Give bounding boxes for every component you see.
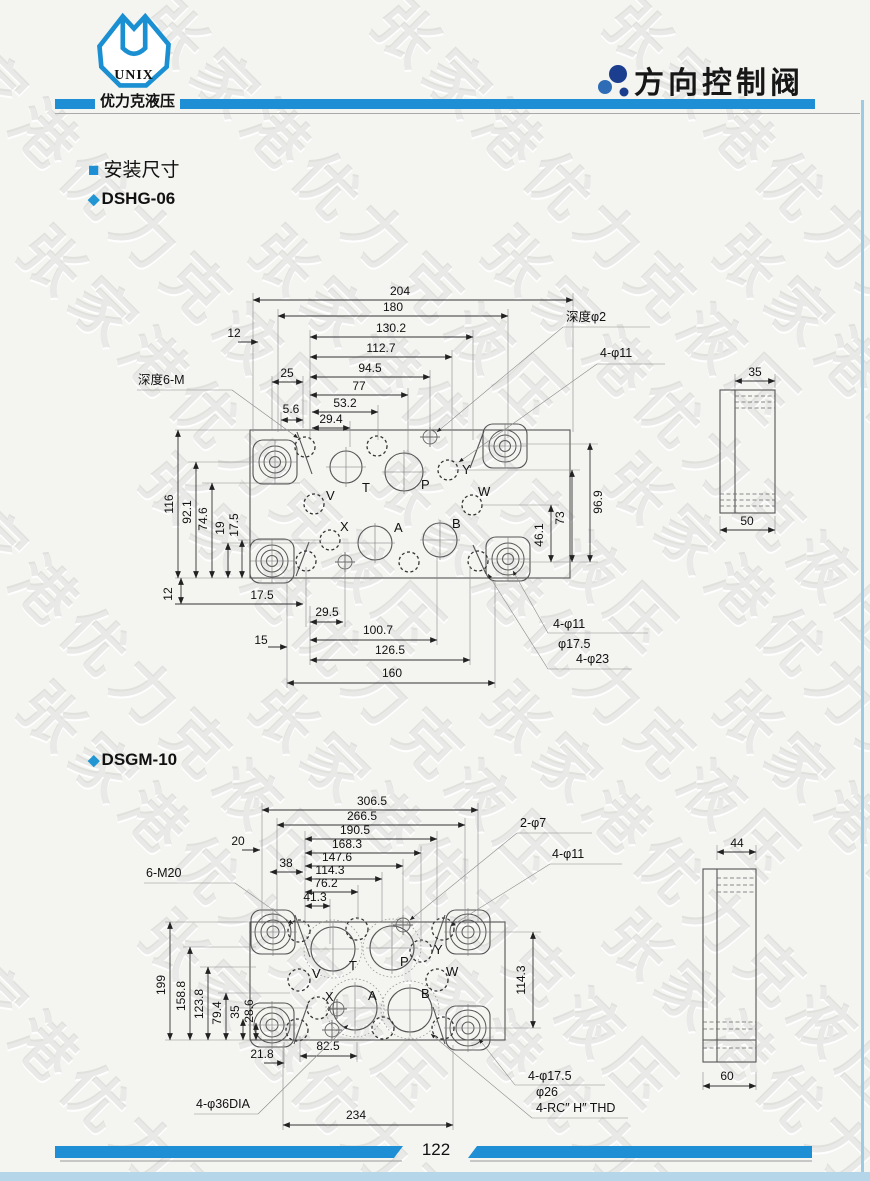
dim-value: 28.6: [242, 999, 256, 1023]
pilot-hole: [367, 436, 387, 456]
dim-value: 20: [231, 834, 245, 848]
ports: V T P Y W X A B: [295, 427, 491, 572]
dim-value: 17.5: [227, 513, 241, 537]
dim-value: 199: [154, 975, 168, 995]
dim-value: 158.8: [174, 981, 188, 1011]
annotation-depth-6m: 深度6-M: [138, 372, 185, 387]
model-heading-dsgm10: ◆DSGM-10: [88, 750, 177, 770]
mounting-hole: [444, 1004, 492, 1052]
dim-value: 82.5: [316, 1039, 340, 1053]
logo-text: UNIX: [114, 68, 154, 83]
mounting-hole: [253, 440, 297, 484]
dim-value: 126.5: [375, 643, 405, 657]
dim-value: 147.6: [322, 850, 352, 864]
dim-value: 114.3: [514, 965, 528, 994]
mounting-hole: [486, 537, 530, 581]
port-X-hole: [320, 530, 340, 550]
port-P: [382, 450, 426, 494]
dims-right: 96.9 73 46.1: [532, 443, 605, 562]
page-title: 方向控制阀: [634, 58, 804, 102]
dim-value: 123.8: [192, 989, 206, 1019]
footer-bar-right: [468, 1146, 812, 1158]
annotations: 深度φ2 4-φ11 深度6-M 4-φ11 φ17.5 4-φ23: [137, 309, 665, 669]
dsgm10-drawing: V T P Y W X A B 306.5 266.5 190.5 168.3 …: [0, 780, 870, 1140]
mounting-hole: [250, 539, 294, 583]
dim-value: 74.6: [196, 507, 210, 531]
port-T: [326, 447, 366, 487]
annotation-4phi175: 4-φ17.5: [528, 1069, 572, 1083]
dim-value: 92.1: [180, 500, 194, 524]
annotation-4phi11: 4-φ11: [552, 847, 584, 861]
dim-value: 266.5: [347, 809, 377, 823]
dim-value: 35: [748, 365, 762, 379]
port-label: X: [325, 989, 334, 1004]
annotation-4phi11-top: 4-φ11: [600, 346, 632, 360]
port-label: V: [312, 966, 321, 981]
port-label: B: [421, 986, 430, 1001]
pilot-hole: [468, 551, 488, 571]
dim-value: 29.5: [315, 605, 339, 619]
dim-value: 53.2: [333, 396, 357, 410]
dim-value: 50: [740, 514, 754, 528]
dim-value: 77: [352, 379, 366, 393]
annotation-4phi11-bottom: 4-φ11: [553, 617, 585, 631]
section-heading: ■安装尺寸: [88, 155, 180, 182]
annotation-4phi36dia: 4-φ36DIA: [196, 1097, 251, 1111]
dim-value: 12: [161, 587, 175, 601]
dim-value: 190.5: [340, 823, 370, 837]
dim-value: 76.2: [314, 876, 338, 890]
page-number: 122: [408, 1140, 464, 1160]
port-V-hole: [304, 494, 324, 514]
dims-right: 114.3: [514, 932, 533, 1028]
dim-value: 94.5: [358, 361, 382, 375]
port-P: [363, 919, 421, 977]
dim-value: 112.7: [366, 341, 395, 355]
dim-value: 168.3: [332, 837, 362, 851]
dim-value: 114.3: [315, 863, 344, 877]
dim-value: 116: [162, 494, 176, 513]
dim-value: 35: [228, 1005, 242, 1019]
annotation-4phi23: 4-φ23: [576, 652, 609, 666]
annotation-phi175: φ17.5: [558, 637, 590, 651]
dim-value: 180: [383, 300, 403, 314]
dim-value: 79.4: [210, 1001, 224, 1025]
dim-value: 12: [227, 326, 241, 340]
dim-value: 100.7: [363, 623, 393, 637]
dim-value: 41.3: [303, 890, 327, 904]
dim-value: 17.5: [250, 588, 274, 602]
dshg06-drawing: V T P Y W X A B 204 180 130.2 1: [0, 270, 870, 700]
dim-value: 5.6: [283, 402, 300, 416]
annotation-phi26: φ26: [536, 1085, 558, 1099]
bottom-edge-strip: [0, 1172, 870, 1181]
brand-text: 优力克液压: [100, 90, 175, 111]
port-label: Y: [434, 942, 443, 957]
port-label: T: [349, 958, 357, 973]
dim-value: 29.4: [319, 412, 343, 426]
port-label: T: [362, 480, 370, 495]
dims-top: 306.5 266.5 190.5 168.3 147.6 114.3 76.2…: [231, 794, 478, 906]
mounting-plate-outline: [250, 424, 570, 583]
dims-bottom: 21.8 82.5 234: [250, 1039, 453, 1125]
title-dots-icon: [596, 62, 634, 100]
dim-value: 19: [213, 521, 227, 535]
port-label: A: [394, 520, 403, 535]
dim-value: 306.5: [357, 794, 387, 808]
port-label: W: [478, 484, 491, 499]
section-title: 安装尺寸: [103, 160, 179, 181]
port-label: Y: [462, 462, 471, 477]
blue-diamond-icon: ◆: [88, 191, 100, 208]
dim-value: 44: [730, 836, 744, 850]
side-view: 35 50: [720, 365, 775, 534]
dim-value: 160: [382, 666, 402, 680]
pilot-hole: [346, 918, 368, 940]
mounting-hole: [249, 908, 297, 956]
dims-left: 116 92.1 74.6 19 17.5: [162, 430, 242, 578]
dim-value: 21.8: [250, 1047, 274, 1061]
annotation-depth-phi2: 深度φ2: [566, 309, 606, 324]
model-name: DSHG-06: [102, 189, 176, 208]
port-label: W: [446, 964, 459, 979]
model-name: DSGM-10: [102, 750, 178, 769]
port-B: [381, 981, 439, 1039]
dim-value: 130.2: [376, 321, 406, 335]
dim-value: 73: [553, 511, 567, 525]
annotation-rc-thread: 4-RC″ H″ THD: [536, 1101, 615, 1115]
dim-value: 25: [280, 366, 294, 380]
brand-bar-left: [55, 99, 95, 109]
port-label: V: [326, 488, 335, 503]
dim-value: 15: [254, 633, 268, 647]
port-label: B: [452, 516, 461, 531]
dim-value: 46.1: [532, 523, 546, 547]
dims-bottom: 12 17.5 29.5 15 100.7 126.5 160: [161, 578, 495, 683]
port-label: A: [368, 988, 377, 1003]
port-label: P: [421, 477, 430, 492]
port-label: P: [400, 954, 409, 969]
blue-square-icon: ■: [88, 160, 99, 181]
model-heading-dshg06: ◆DSHG-06: [88, 189, 175, 209]
side-view: 44 60: [703, 836, 756, 1090]
port-V-hole: [288, 969, 310, 991]
dim-value: 60: [720, 1069, 734, 1083]
mounting-hole: [483, 424, 527, 468]
right-edge-strip: [861, 100, 864, 1172]
port-A: [355, 523, 395, 563]
ports: V T P Y W X A B: [286, 915, 459, 1041]
dims-left: 199 158.8 123.8 79.4 35 28.6: [154, 922, 256, 1040]
dim-value: 234: [346, 1108, 366, 1122]
header-underline: [55, 113, 860, 114]
blue-diamond-icon: ◆: [88, 752, 100, 769]
dim-value: 38: [279, 856, 293, 870]
dim-value: 204: [390, 284, 410, 298]
unix-logo: UNIX: [92, 8, 176, 92]
footer-bar-left: [55, 1146, 403, 1158]
pilot-hole: [399, 552, 419, 572]
annotation-6m20: 6-M20: [146, 866, 181, 880]
port-label: X: [340, 519, 349, 534]
dim-value: 96.9: [591, 490, 605, 514]
dims-top: 204 180 130.2 112.7 94.5 77 53.2 29.4 12…: [227, 284, 573, 428]
annotation-2phi7: 2-φ7: [520, 816, 546, 830]
